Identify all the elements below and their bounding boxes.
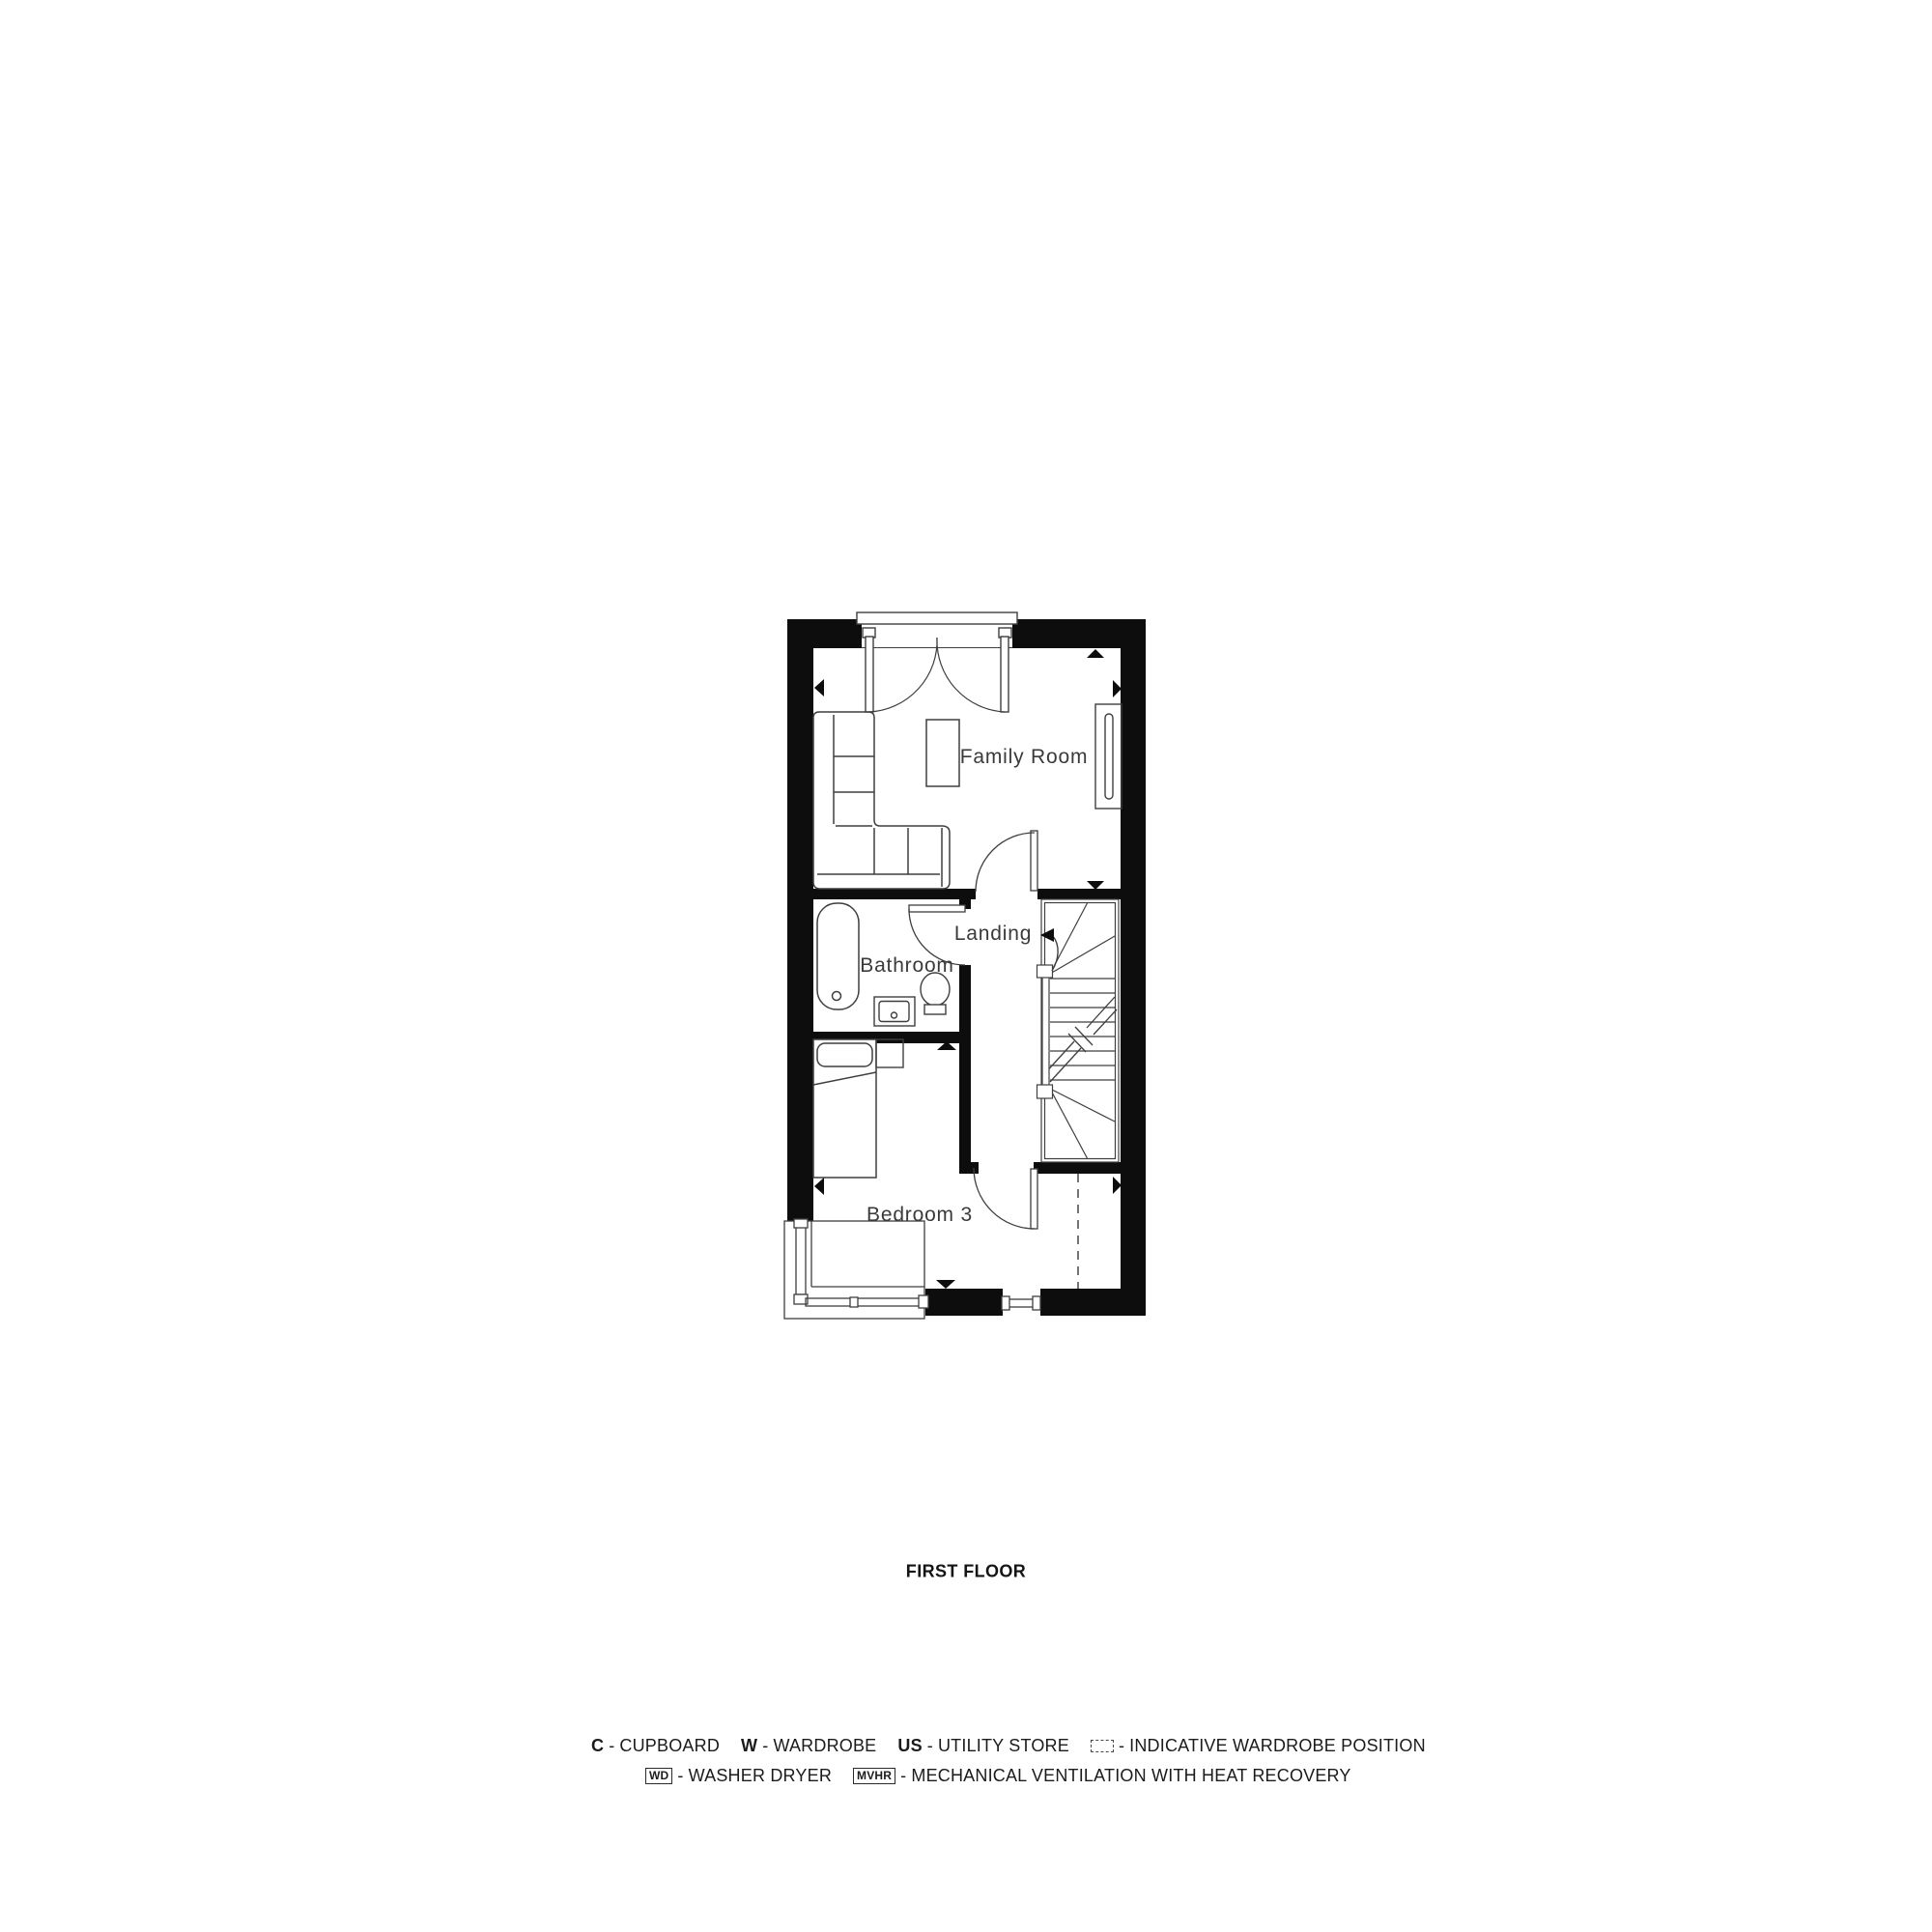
legend-item-utility-store: US - UTILITY STORE	[897, 1736, 1069, 1756]
legend-item-mvhr: MVHR - MECHANICAL VENTILATION WITH HEAT …	[853, 1766, 1351, 1786]
landing-label: Landing	[954, 923, 1032, 946]
staircase	[1037, 899, 1120, 1162]
corner-bay	[784, 1219, 928, 1319]
radiator	[1095, 704, 1122, 809]
basin	[874, 997, 915, 1026]
family-room-label: Family Room	[960, 746, 1088, 769]
legend-text-indicative-wardrobe: INDICATIVE WARDROBE POSITION	[1129, 1736, 1426, 1756]
legend-text-washer-dryer: WASHER DRYER	[689, 1766, 832, 1786]
legend-key-us: US	[897, 1736, 922, 1756]
legend-separator: -	[677, 1766, 683, 1786]
wd-box-icon: WD	[645, 1768, 672, 1784]
corner-sofa	[813, 712, 950, 889]
legend-text-utility-store: UTILITY STORE	[938, 1736, 1069, 1756]
bottom-window	[1002, 1296, 1040, 1310]
legend-text-mvhr: MECHANICAL VENTILATION WITH HEAT RECOVER…	[911, 1766, 1350, 1786]
legend-item-washer-dryer: WD - WASHER DRYER	[645, 1766, 832, 1786]
bed	[813, 1039, 876, 1178]
floorplan-page: { "plan": { "title": "FIRST FLOOR", "roo…	[0, 0, 1932, 1932]
legend-text-wardrobe: WARDROBE	[773, 1736, 876, 1756]
legend-separator: -	[762, 1736, 768, 1756]
bathtub	[817, 903, 859, 1009]
legend-row-2: WD - WASHER DRYER MVHR - MECHANICAL VENT…	[645, 1766, 1351, 1786]
bedroom-3-label: Bedroom 3	[867, 1204, 973, 1227]
french-doors	[862, 628, 1012, 712]
legend-item-wardrobe: W - WARDROBE	[741, 1736, 876, 1756]
legend-row-1: C - CUPBOARD W - WARDROBE US - UTILITY S…	[591, 1736, 1426, 1756]
legend-separator: -	[1119, 1736, 1124, 1756]
legend-separator: -	[609, 1736, 614, 1756]
legend-separator: -	[900, 1766, 906, 1786]
side-table	[876, 1039, 903, 1067]
coffee-table	[926, 720, 959, 786]
legend-key-c: C	[591, 1736, 604, 1756]
legend-item-cupboard: C - CUPBOARD	[591, 1736, 720, 1756]
mvhr-box-icon: MVHR	[853, 1768, 895, 1784]
dashed-box-icon	[1091, 1740, 1114, 1752]
legend-separator: -	[927, 1736, 933, 1756]
legend-key-w: W	[741, 1736, 757, 1756]
toilet	[921, 973, 950, 1014]
legend-text-cupboard: CUPBOARD	[619, 1736, 720, 1756]
floor-plan-drawing	[0, 0, 1932, 1932]
juliet-balcony-frame	[857, 612, 1017, 624]
floor-title: FIRST FLOOR	[906, 1562, 1026, 1582]
legend-item-indicative-wardrobe: - INDICATIVE WARDROBE POSITION	[1091, 1736, 1426, 1756]
bathroom-label: Bathroom	[860, 954, 953, 978]
